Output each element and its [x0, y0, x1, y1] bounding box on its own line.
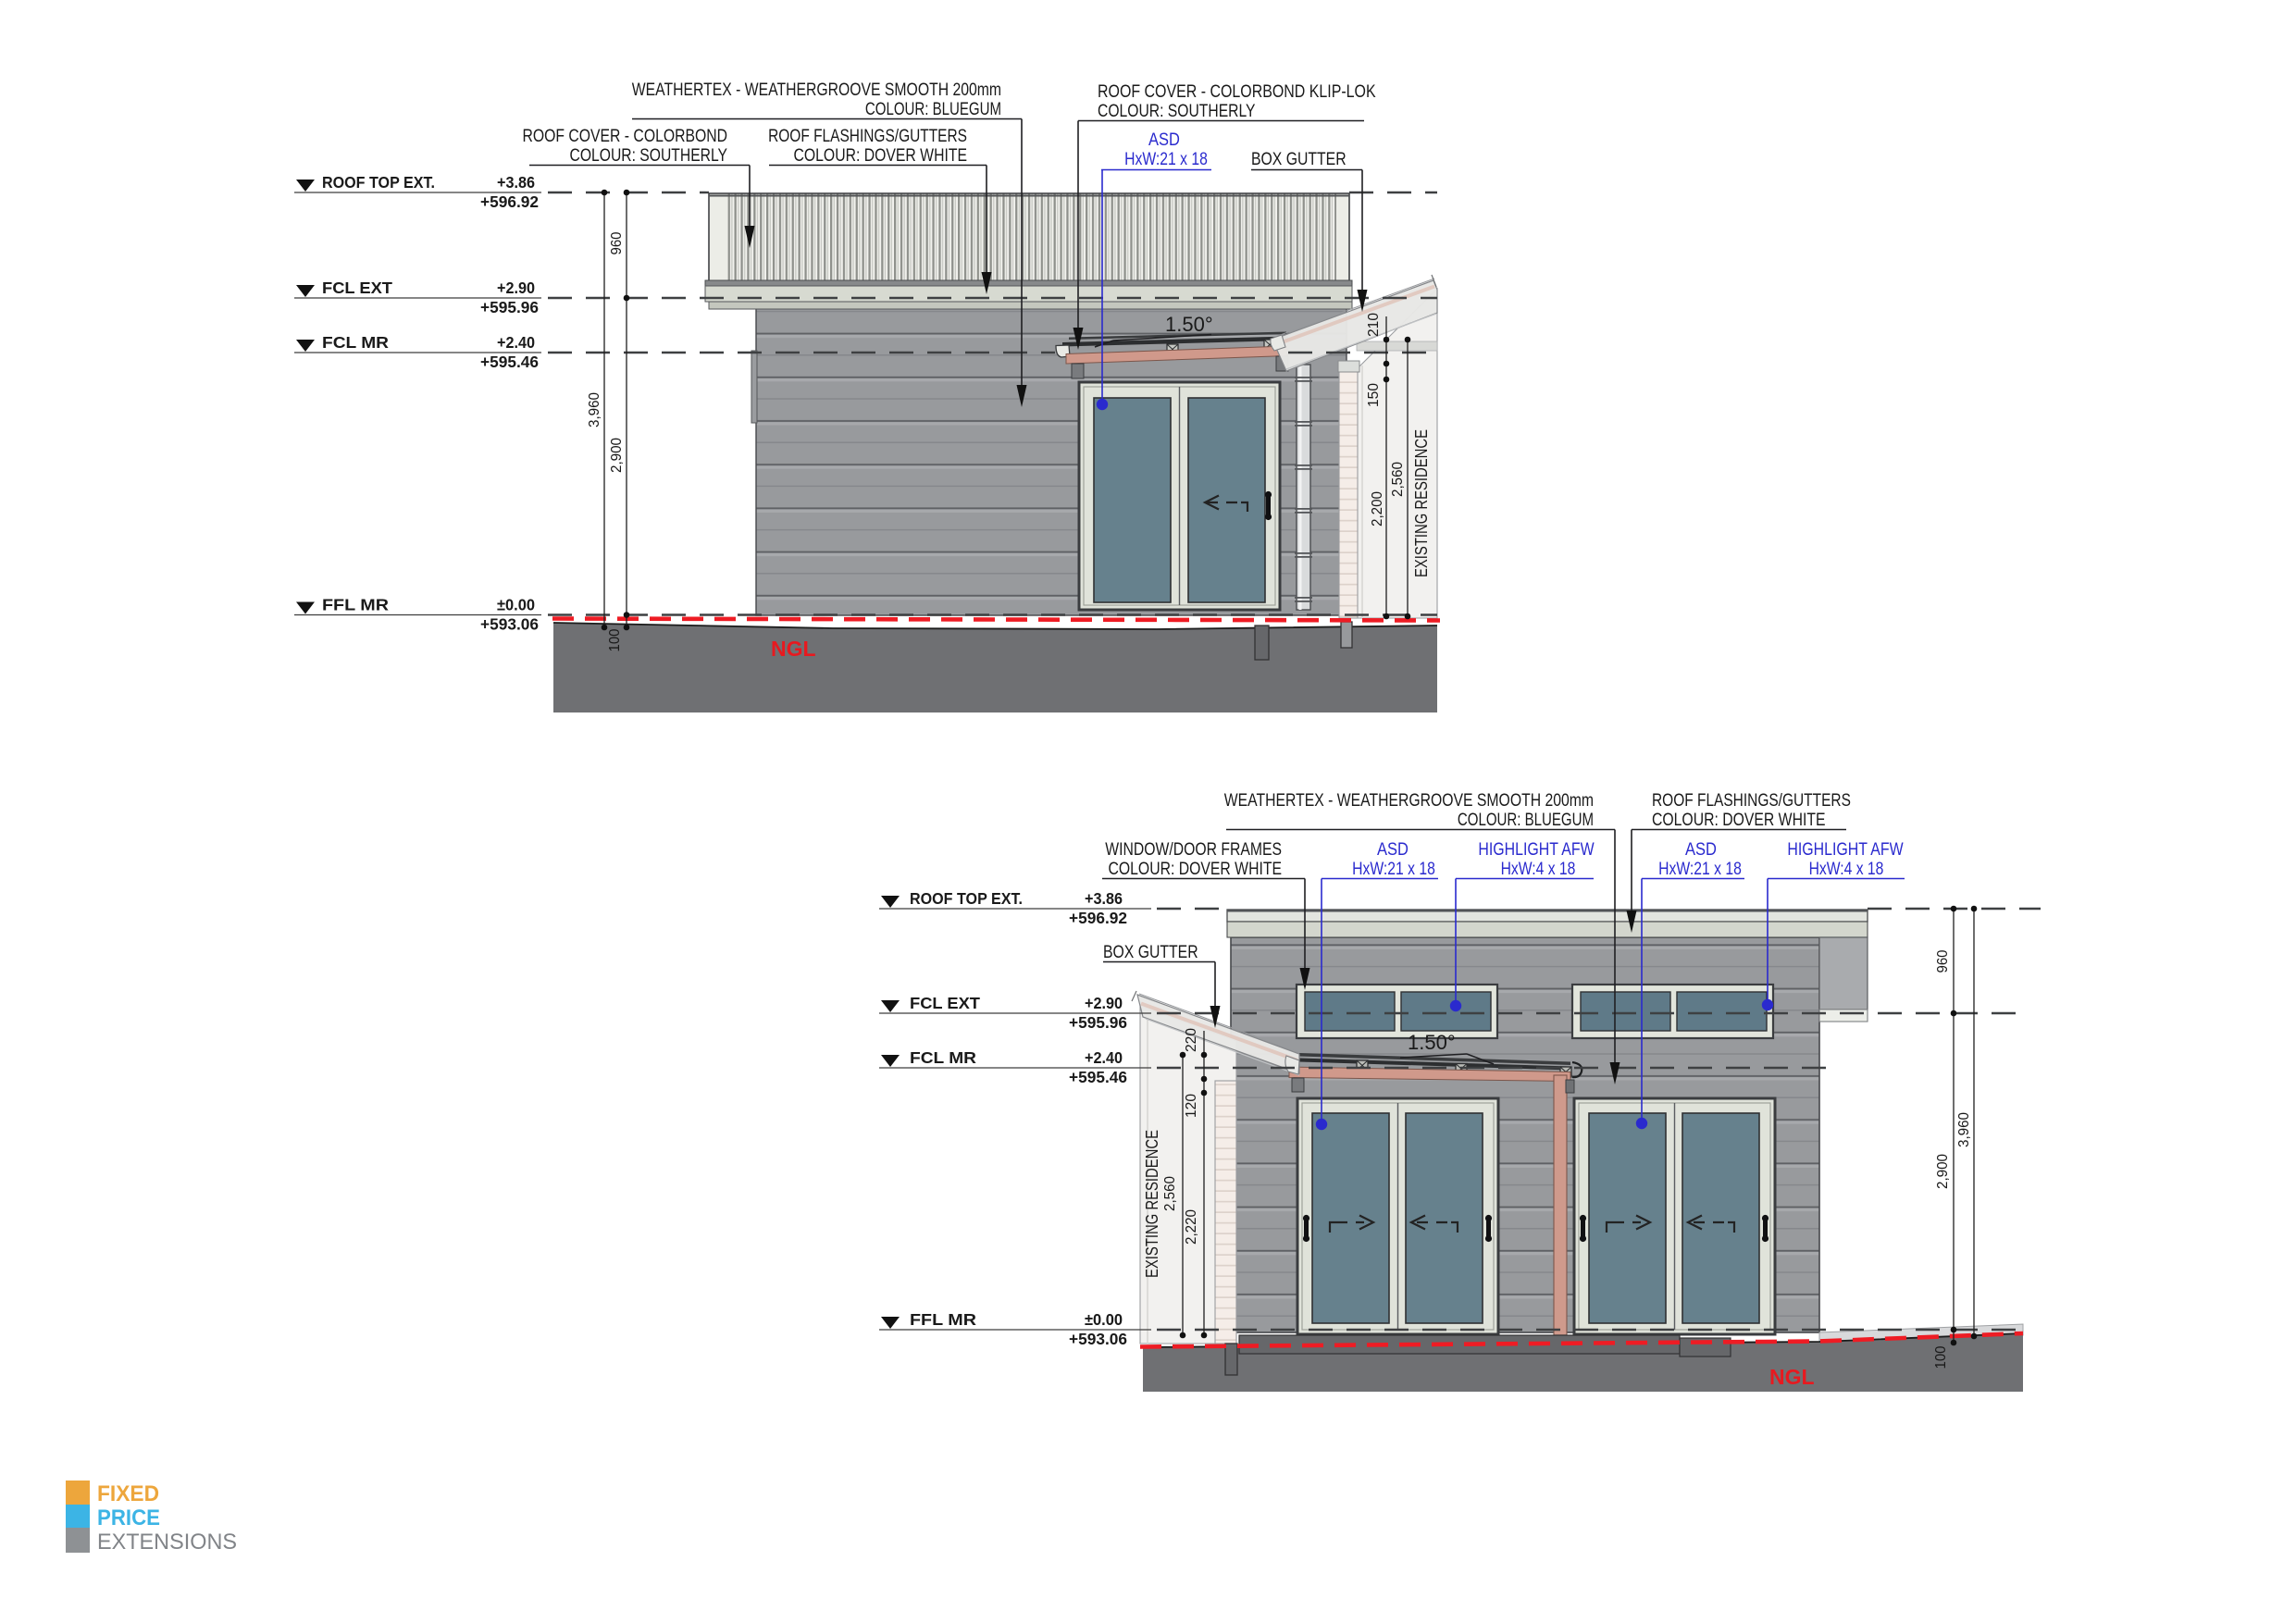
svg-text:+2.40: +2.40	[497, 333, 535, 352]
svg-text:COLOUR: SOUTHERLY: COLOUR: SOUTHERLY	[1098, 101, 1256, 121]
svg-text:2,220: 2,220	[1184, 1209, 1199, 1245]
svg-text:2,900: 2,900	[609, 438, 625, 473]
svg-text:BOX GUTTER: BOX GUTTER	[1103, 942, 1198, 962]
svg-text:+593.06: +593.06	[480, 615, 539, 634]
svg-text:+2.90: +2.90	[497, 279, 535, 297]
svg-text:3,960: 3,960	[587, 392, 602, 427]
svg-text:HxW:21 x 18: HxW:21 x 18	[1352, 859, 1435, 879]
svg-text:PRICE: PRICE	[97, 1505, 160, 1530]
svg-text:BOX GUTTER: BOX GUTTER	[1251, 149, 1347, 169]
svg-text:HxW:21 x 18: HxW:21 x 18	[1124, 149, 1208, 169]
svg-text:ROOF FLASHINGS/GUTTERS: ROOF FLASHINGS/GUTTERS	[1652, 790, 1851, 811]
svg-text:FCL EXT: FCL EXT	[322, 279, 392, 297]
svg-text:960: 960	[1935, 949, 1951, 973]
svg-text:210: 210	[1366, 313, 1382, 337]
svg-text:120: 120	[1184, 1094, 1199, 1118]
svg-text:NGL: NGL	[1769, 1365, 1815, 1389]
svg-text:100: 100	[607, 628, 623, 651]
svg-text:+595.96: +595.96	[1069, 1013, 1127, 1032]
svg-text:WINDOW/DOOR FRAMES: WINDOW/DOOR FRAMES	[1105, 839, 1282, 860]
svg-text:ASD: ASD	[1148, 130, 1180, 150]
svg-text:+596.92: +596.92	[480, 192, 539, 211]
svg-text:EXTENSIONS: EXTENSIONS	[97, 1530, 237, 1555]
svg-text:ASD: ASD	[1685, 839, 1717, 860]
svg-text:+595.46: +595.46	[1069, 1068, 1127, 1086]
svg-text:FCL MR: FCL MR	[910, 1048, 976, 1067]
svg-text:HxW:21 x 18: HxW:21 x 18	[1658, 859, 1742, 879]
svg-text:ASD: ASD	[1377, 839, 1409, 860]
svg-text:3,960: 3,960	[1956, 1112, 1972, 1147]
svg-text:HxW:4 x 18: HxW:4 x 18	[1501, 859, 1576, 879]
svg-text:FFL MR: FFL MR	[910, 1310, 976, 1329]
svg-text:2,900: 2,900	[1935, 1154, 1951, 1189]
svg-text:COLOUR: SOUTHERLY: COLOUR: SOUTHERLY	[570, 145, 728, 166]
svg-text:2,560: 2,560	[1162, 1176, 1178, 1211]
svg-text:±0.00: ±0.00	[1085, 1310, 1123, 1329]
svg-text:+596.92: +596.92	[1069, 909, 1127, 927]
svg-text:EXISTING RESIDENCE: EXISTING RESIDENCE	[1411, 429, 1431, 577]
svg-text:ROOF COVER - COLORBOND: ROOF COVER - COLORBOND	[523, 126, 728, 146]
svg-text:FCL EXT: FCL EXT	[910, 994, 980, 1012]
svg-text:960: 960	[609, 231, 625, 254]
svg-text:100: 100	[1933, 1345, 1949, 1369]
svg-text:FFL MR: FFL MR	[322, 596, 389, 614]
svg-text:HxW:4 x 18: HxW:4 x 18	[1809, 859, 1884, 879]
svg-text:ROOF TOP EXT.: ROOF TOP EXT.	[910, 889, 1023, 908]
svg-text:FCL MR: FCL MR	[322, 333, 389, 352]
svg-text:+3.86: +3.86	[497, 173, 535, 192]
svg-text:ROOF COVER - COLORBOND KLIP-LO: ROOF COVER - COLORBOND KLIP-LOK	[1098, 81, 1376, 102]
svg-text:HIGHLIGHT AFW: HIGHLIGHT AFW	[1478, 839, 1595, 860]
svg-text:COLOUR: BLUEGUM: COLOUR: BLUEGUM	[865, 99, 1001, 119]
svg-text:COLOUR: DOVER WHITE: COLOUR: DOVER WHITE	[1109, 859, 1283, 879]
svg-text:COLOUR: DOVER WHITE: COLOUR: DOVER WHITE	[794, 145, 968, 166]
svg-text:+595.46: +595.46	[480, 353, 539, 371]
svg-text:1.50°: 1.50°	[1408, 1031, 1456, 1054]
svg-text:1.50°: 1.50°	[1165, 313, 1213, 336]
svg-text:+2.40: +2.40	[1085, 1048, 1123, 1067]
svg-text:ROOF FLASHINGS/GUTTERS: ROOF FLASHINGS/GUTTERS	[768, 126, 967, 146]
svg-text:WEATHERTEX - WEATHERGROOVE SMO: WEATHERTEX - WEATHERGROOVE SMOOTH 200mm	[1224, 790, 1594, 811]
svg-text:+2.90: +2.90	[1085, 994, 1123, 1012]
svg-text:220: 220	[1184, 1028, 1199, 1052]
svg-text:EXISTING RESIDENCE: EXISTING RESIDENCE	[1142, 1130, 1161, 1278]
svg-text:WEATHERTEX - WEATHERGROOVE SMO: WEATHERTEX - WEATHERGROOVE SMOOTH 200mm	[632, 80, 1001, 100]
svg-text:COLOUR: BLUEGUM: COLOUR: BLUEGUM	[1458, 810, 1594, 830]
svg-text:+595.96: +595.96	[480, 298, 539, 316]
svg-text:ROOF TOP EXT.: ROOF TOP EXT.	[322, 173, 435, 192]
svg-text:+593.06: +593.06	[1069, 1330, 1127, 1348]
svg-text:COLOUR: DOVER WHITE: COLOUR: DOVER WHITE	[1652, 810, 1826, 830]
svg-text:FIXED: FIXED	[97, 1481, 159, 1506]
svg-text:150: 150	[1366, 383, 1382, 407]
svg-text:2,200: 2,200	[1370, 491, 1385, 527]
svg-text:+3.86: +3.86	[1085, 889, 1123, 908]
svg-text:NGL: NGL	[771, 637, 816, 661]
svg-text:HIGHLIGHT AFW: HIGHLIGHT AFW	[1787, 839, 1904, 860]
svg-text:2,560: 2,560	[1390, 462, 1406, 497]
svg-text:±0.00: ±0.00	[497, 596, 535, 614]
